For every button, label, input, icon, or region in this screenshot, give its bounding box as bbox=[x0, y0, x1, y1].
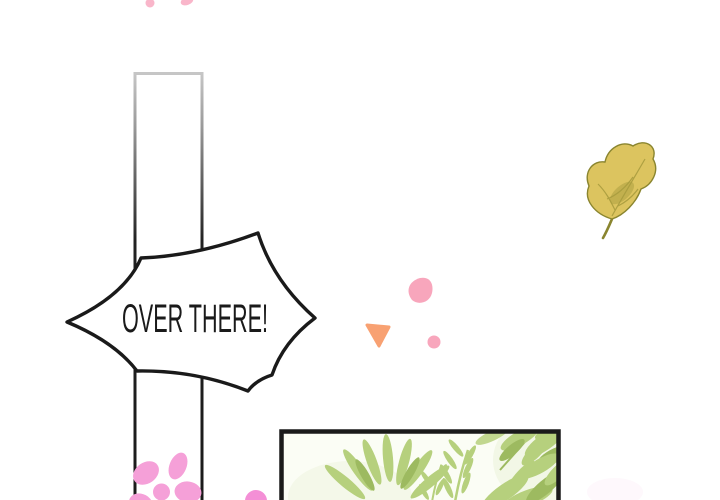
panel-foliage bbox=[282, 414, 598, 500]
speech-bubble: OVER THERE! bbox=[67, 233, 315, 391]
comic-artwork: OVER THERE! bbox=[0, 0, 720, 500]
comic-page: OVER THERE! bbox=[0, 0, 720, 500]
leaf-blade bbox=[587, 143, 655, 219]
leaf-stem bbox=[603, 219, 612, 238]
petal-shape bbox=[409, 278, 433, 303]
top-petal-fragments bbox=[146, 0, 195, 8]
petal-blob bbox=[245, 490, 267, 500]
flower-center bbox=[153, 484, 170, 500]
falling-leaf bbox=[587, 143, 655, 238]
confetti-triangle bbox=[367, 325, 389, 346]
petal-dot bbox=[428, 336, 441, 349]
petal-top-right bbox=[180, 0, 195, 7]
petal-top-left bbox=[146, 0, 155, 8]
petal-tint bbox=[587, 478, 643, 500]
shout-bubble-text: OVER THERE! bbox=[122, 297, 268, 341]
